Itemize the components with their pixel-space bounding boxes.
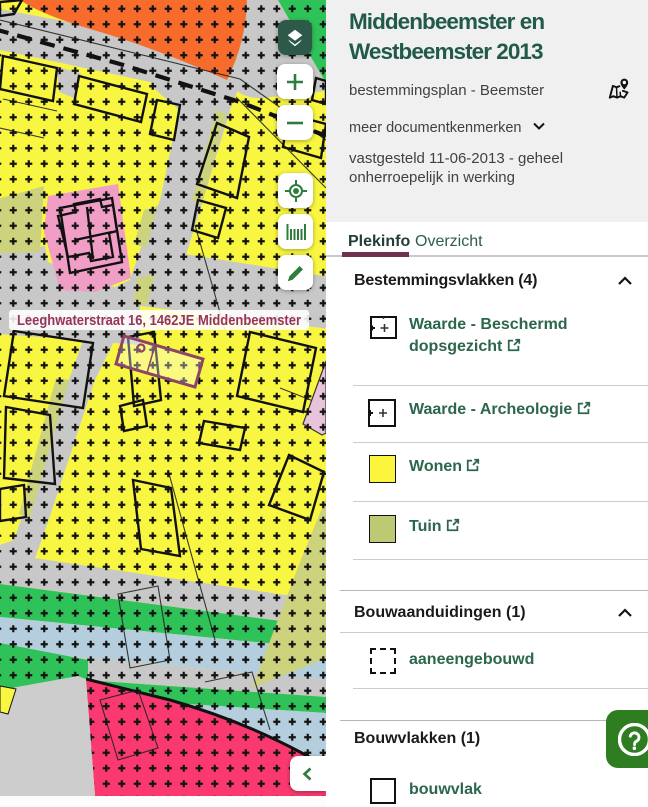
svg-text:Leeghwaterstraat 16, 1462JE Mi: Leeghwaterstraat 16, 1462JE Middenbeemst… [17, 313, 301, 329]
